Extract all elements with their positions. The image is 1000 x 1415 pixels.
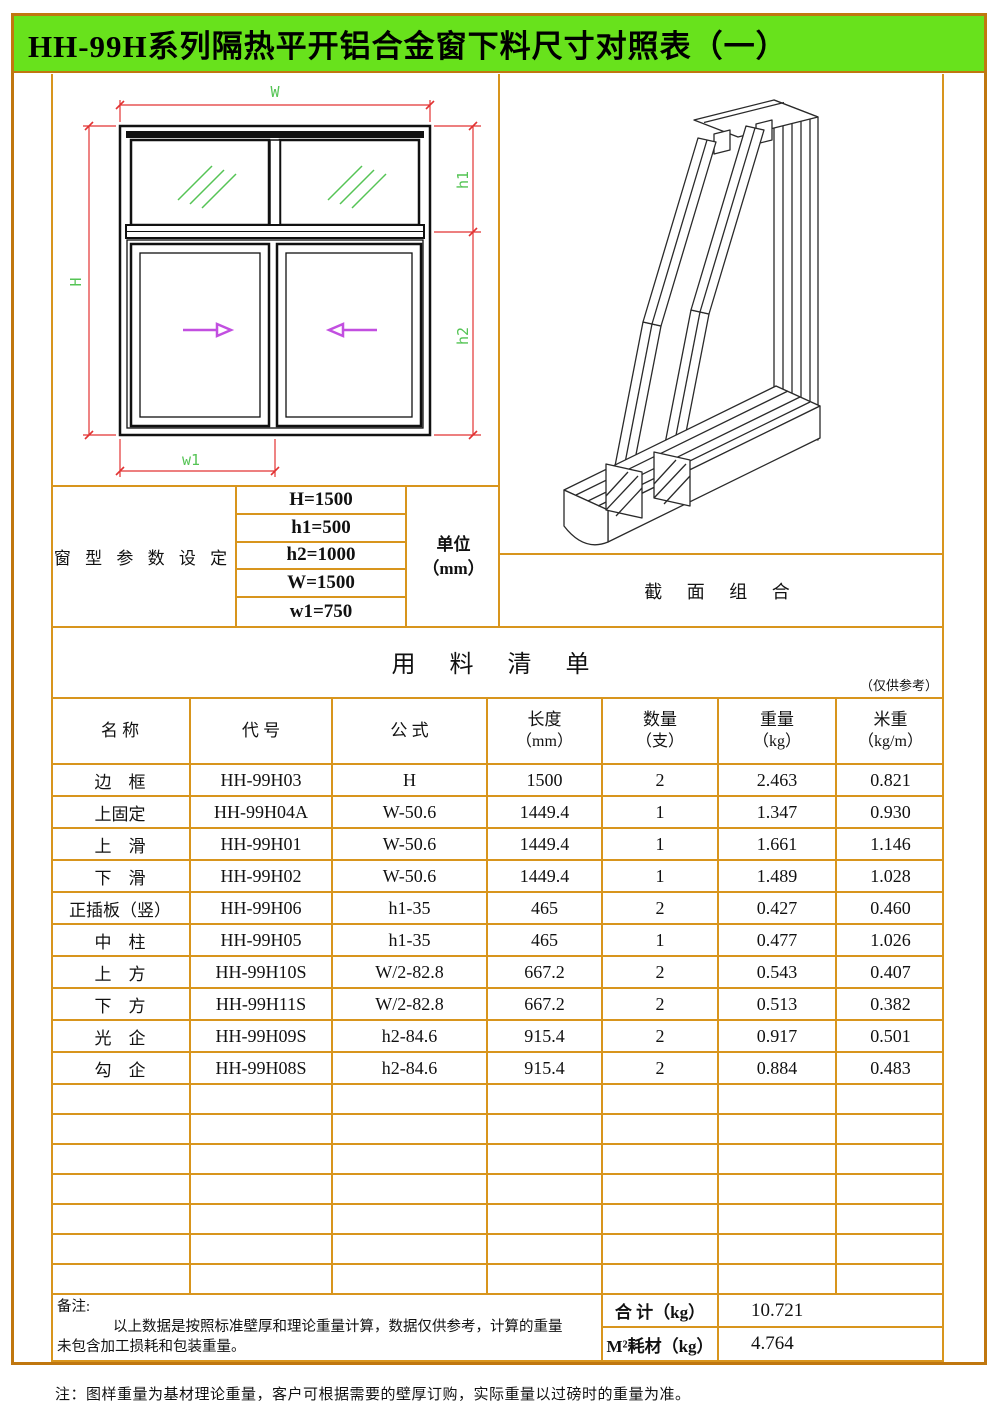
table-cell: 667.2 [488, 957, 603, 987]
bom-rows: 边 框HH-99H03H150022.4630.821上固定HH-99H04AW… [51, 765, 944, 1295]
glazing-bead-block-front [606, 464, 642, 518]
table-row: 勾 企HH-99H08Sh2-84.6915.420.8840.483 [51, 1053, 944, 1085]
table-cell: 0.460 [837, 893, 944, 923]
empty-table-cell [191, 1115, 333, 1143]
empty-table-cell [333, 1085, 488, 1113]
empty-table-cell [488, 1085, 603, 1113]
empty-table-cell [191, 1145, 333, 1173]
bom-title: 用 料 清 单 [51, 644, 944, 679]
empty-table-cell [191, 1085, 333, 1113]
table-cell: HH-99H08S [191, 1053, 333, 1083]
table-cell: W/2-82.8 [333, 989, 488, 1019]
table-cell: 667.2 [488, 989, 603, 1019]
empty-table-cell [51, 1175, 191, 1203]
empty-table-cell [333, 1235, 488, 1263]
table-cell: 光 企 [51, 1021, 191, 1051]
remark-label: 备注: [57, 1297, 593, 1317]
parameter-values: H=1500 h1=500 h2=1000 W=1500 w1=750 [235, 487, 407, 626]
header-formula: 公 式 [333, 699, 488, 763]
table-cell: HH-99H11S [191, 989, 333, 1019]
empty-table-cell [488, 1115, 603, 1143]
parameter-value: h2=1000 [237, 543, 405, 571]
empty-table-cell [719, 1115, 837, 1143]
bom-table: 名 称 代 号 公 式 长度（mm） 数量（支） 重量（kg） 米重（kg/m）… [51, 697, 944, 1295]
sliding-sash-left [131, 244, 269, 426]
table-cell: 2 [603, 1021, 719, 1051]
table-cell: 0.821 [837, 765, 944, 795]
header-name: 名 称 [51, 699, 191, 763]
empty-table-cell [488, 1145, 603, 1173]
table-cell: 2 [603, 989, 719, 1019]
table-cell: h2-84.6 [333, 1053, 488, 1083]
table-cell: h2-84.6 [333, 1021, 488, 1051]
header-weight: 重量（kg） [719, 699, 837, 763]
empty-table-row [51, 1115, 944, 1145]
empty-table-row [51, 1265, 944, 1295]
empty-table-cell [837, 1265, 944, 1293]
empty-table-cell [191, 1235, 333, 1263]
table-cell: 下 滑 [51, 861, 191, 891]
remark-cell: 备注: 以上数据是按照标准壁厚和理论重量计算，数据仅供参考，计算的重量 未包含加… [51, 1295, 603, 1360]
empty-table-cell [719, 1235, 837, 1263]
empty-table-cell [333, 1175, 488, 1203]
empty-table-cell [488, 1265, 603, 1293]
table-cell: W/2-82.8 [333, 957, 488, 987]
empty-table-cell [603, 1145, 719, 1173]
table-row: 上 滑HH-99H01W-50.61449.411.6611.146 [51, 829, 944, 861]
empty-table-cell [603, 1235, 719, 1263]
parameter-value: H=1500 [237, 487, 405, 515]
unit-cell: 单位 （mm） [407, 487, 500, 626]
empty-table-row [51, 1145, 944, 1175]
table-cell: 上 方 [51, 957, 191, 987]
empty-table-row [51, 1175, 944, 1205]
empty-table-cell [333, 1145, 488, 1173]
empty-table-cell [51, 1235, 191, 1263]
dim-label-w1: w1 [182, 451, 200, 469]
table-cell: 1.146 [837, 829, 944, 859]
empty-table-cell [603, 1205, 719, 1233]
per-sqm-label: M²耗材（kg） [603, 1328, 719, 1360]
table-cell: 0.930 [837, 797, 944, 827]
sliding-sash-right [277, 244, 421, 426]
table-cell: 915.4 [488, 1021, 603, 1051]
table-cell: HH-99H09S [191, 1021, 333, 1051]
table-cell: 2 [603, 957, 719, 987]
table-cell: 下 方 [51, 989, 191, 1019]
total-value: 10.721 [719, 1295, 944, 1328]
table-cell: 1449.4 [488, 861, 603, 891]
empty-table-cell [191, 1265, 333, 1293]
bottom-sill-profile [564, 386, 820, 545]
table-cell: 1.661 [719, 829, 837, 859]
table-cell: 1.347 [719, 797, 837, 827]
empty-table-cell [837, 1205, 944, 1233]
dimension-h [83, 122, 116, 439]
table-cell: 1449.4 [488, 829, 603, 859]
table-cell: 0.427 [719, 893, 837, 923]
empty-table-cell [719, 1265, 837, 1293]
remark-line1: 以上数据是按照标准壁厚和理论重量计算，数据仅供参考，计算的重量 [57, 1317, 593, 1337]
table-cell: HH-99H10S [191, 957, 333, 987]
table-cell: HH-99H06 [191, 893, 333, 923]
empty-table-cell [191, 1175, 333, 1203]
bom-header-row: 名 称 代 号 公 式 长度（mm） 数量（支） 重量（kg） 米重（kg/m） [51, 697, 944, 765]
table-cell: 1449.4 [488, 797, 603, 827]
empty-table-cell [333, 1265, 488, 1293]
bom-footer: 备注: 以上数据是按照标准壁厚和理论重量计算，数据仅供参考，计算的重量 未包含加… [51, 1295, 944, 1362]
empty-table-cell [51, 1265, 191, 1293]
empty-table-cell [333, 1205, 488, 1233]
empty-table-cell [719, 1085, 837, 1113]
table-cell: 0.543 [719, 957, 837, 987]
parameter-table-label: 窗 型 参 数 设 定 [51, 487, 235, 626]
header-length: 长度（mm） [488, 699, 603, 763]
table-cell: 1.489 [719, 861, 837, 891]
table-cell: 465 [488, 925, 603, 955]
parameter-value: h1=500 [237, 515, 405, 543]
dimension-h1-h2 [434, 122, 481, 439]
parameter-table: 窗 型 参 数 设 定 H=1500 h1=500 h2=1000 W=1500… [51, 485, 500, 626]
total-label: 合 计（kg） [603, 1295, 719, 1328]
table-cell: 915.4 [488, 1053, 603, 1083]
glazing-bead-block-back [654, 452, 690, 506]
table-cell: HH-99H04A [191, 797, 333, 827]
parameter-value: W=1500 [237, 570, 405, 598]
table-cell: h1-35 [333, 925, 488, 955]
table-cell: 1500 [488, 765, 603, 795]
table-row: 中 柱HH-99H05h1-3546510.4771.026 [51, 925, 944, 957]
table-cell: 1.028 [837, 861, 944, 891]
sheet-title-band: HH-99H系列隔热平开铝合金窗下料尺寸对照表（一） [14, 16, 984, 73]
empty-table-row [51, 1205, 944, 1235]
empty-table-cell [51, 1145, 191, 1173]
table-cell: 0.884 [719, 1053, 837, 1083]
empty-table-cell [603, 1085, 719, 1113]
table-row: 光 企HH-99H09Sh2-84.6915.420.9170.501 [51, 1021, 944, 1053]
parameter-value: w1=750 [237, 598, 405, 626]
dimension-w [116, 100, 434, 122]
empty-table-cell [837, 1145, 944, 1173]
table-cell: W-50.6 [333, 861, 488, 891]
fixed-glass-left [131, 140, 269, 225]
table-cell: 正插板（竖） [51, 893, 191, 923]
empty-table-cell [719, 1205, 837, 1233]
empty-table-cell [837, 1175, 944, 1203]
window-elevation-diagram: W H h1 h2 w1 [51, 74, 500, 485]
table-cell: 1 [603, 829, 719, 859]
window-frame [120, 126, 430, 435]
table-cell: HH-99H05 [191, 925, 333, 955]
table-cell: 1 [603, 861, 719, 891]
table-cell: HH-99H03 [191, 765, 333, 795]
table-cell: 2 [603, 893, 719, 923]
table-cell: 0.513 [719, 989, 837, 1019]
table-cell: H [333, 765, 488, 795]
table-cell: 0.917 [719, 1021, 837, 1051]
dim-label-h1: h1 [454, 171, 472, 189]
empty-table-cell [719, 1145, 837, 1173]
empty-table-cell [488, 1235, 603, 1263]
empty-table-row [51, 1085, 944, 1115]
table-cell: 0.477 [719, 925, 837, 955]
table-cell: h1-35 [333, 893, 488, 923]
header-code: 代 号 [191, 699, 333, 763]
empty-table-cell [603, 1175, 719, 1203]
table-cell: HH-99H01 [191, 829, 333, 859]
table-row: 下 滑HH-99H02W-50.61449.411.4891.028 [51, 861, 944, 893]
table-cell: 0.407 [837, 957, 944, 987]
empty-table-cell [603, 1265, 719, 1293]
dim-label-w: W [270, 83, 280, 101]
header-meter-weight: 米重（kg/m） [837, 699, 944, 763]
empty-table-cell [603, 1115, 719, 1143]
sheet-footnote: 注：图样重量为基材理论重量，客户可根据需要的壁厚订购，实际重量以过磅时的重量为准… [55, 1383, 965, 1404]
empty-table-cell [333, 1115, 488, 1143]
table-cell: 2 [603, 765, 719, 795]
dim-label-h2: h2 [454, 327, 472, 345]
table-cell: 1 [603, 797, 719, 827]
table-row: 上 方HH-99H10SW/2-82.8667.220.5430.407 [51, 957, 944, 989]
remark-line2: 未包含加工损耗和包装重量。 [57, 1337, 593, 1357]
table-cell: 0.501 [837, 1021, 944, 1051]
table-cell: 中 柱 [51, 925, 191, 955]
bom-title-strip: 用 料 清 单 （仅供参考） [51, 628, 944, 697]
empty-table-cell [837, 1115, 944, 1143]
table-cell: W-50.6 [333, 797, 488, 827]
empty-table-cell [51, 1085, 191, 1113]
section-caption: 截 面 组 合 [500, 555, 944, 626]
empty-table-cell [191, 1205, 333, 1233]
table-cell: 1 [603, 925, 719, 955]
table-row: 上固定HH-99H04AW-50.61449.411.3470.930 [51, 797, 944, 829]
bom-reference-note: （仅供参考） [860, 675, 938, 694]
table-cell: 465 [488, 893, 603, 923]
per-sqm-value: 4.764 [719, 1328, 944, 1360]
empty-table-cell [488, 1205, 603, 1233]
table-cell: 0.483 [837, 1053, 944, 1083]
top-mullion [270, 140, 280, 225]
table-cell: HH-99H02 [191, 861, 333, 891]
table-cell: 0.382 [837, 989, 944, 1019]
section-assembly-drawing [500, 74, 944, 553]
empty-table-cell [837, 1085, 944, 1113]
table-row: 正插板（竖）HH-99H06h1-3546520.4270.460 [51, 893, 944, 925]
table-cell: 2.463 [719, 765, 837, 795]
empty-table-cell [837, 1235, 944, 1263]
empty-table-cell [719, 1175, 837, 1203]
table-row: 边 框HH-99H03H150022.4630.821 [51, 765, 944, 797]
table-row: 下 方HH-99H11SW/2-82.8667.220.5130.382 [51, 989, 944, 1021]
empty-table-cell [488, 1175, 603, 1203]
page-title: HH-99H系列隔热平开铝合金窗下料尺寸对照表（一） [28, 21, 788, 66]
table-cell: 边 框 [51, 765, 191, 795]
table-cell: 上固定 [51, 797, 191, 827]
table-cell: 1.026 [837, 925, 944, 955]
empty-table-cell [51, 1205, 191, 1233]
table-cell: 上 滑 [51, 829, 191, 859]
header-quantity: 数量（支） [603, 699, 719, 763]
table-cell: 勾 企 [51, 1053, 191, 1083]
dim-label-h: H [67, 277, 85, 286]
empty-table-row [51, 1235, 944, 1265]
table-cell: 2 [603, 1053, 719, 1083]
fixed-glass-right [280, 140, 419, 225]
empty-table-cell [51, 1115, 191, 1143]
table-cell: W-50.6 [333, 829, 488, 859]
